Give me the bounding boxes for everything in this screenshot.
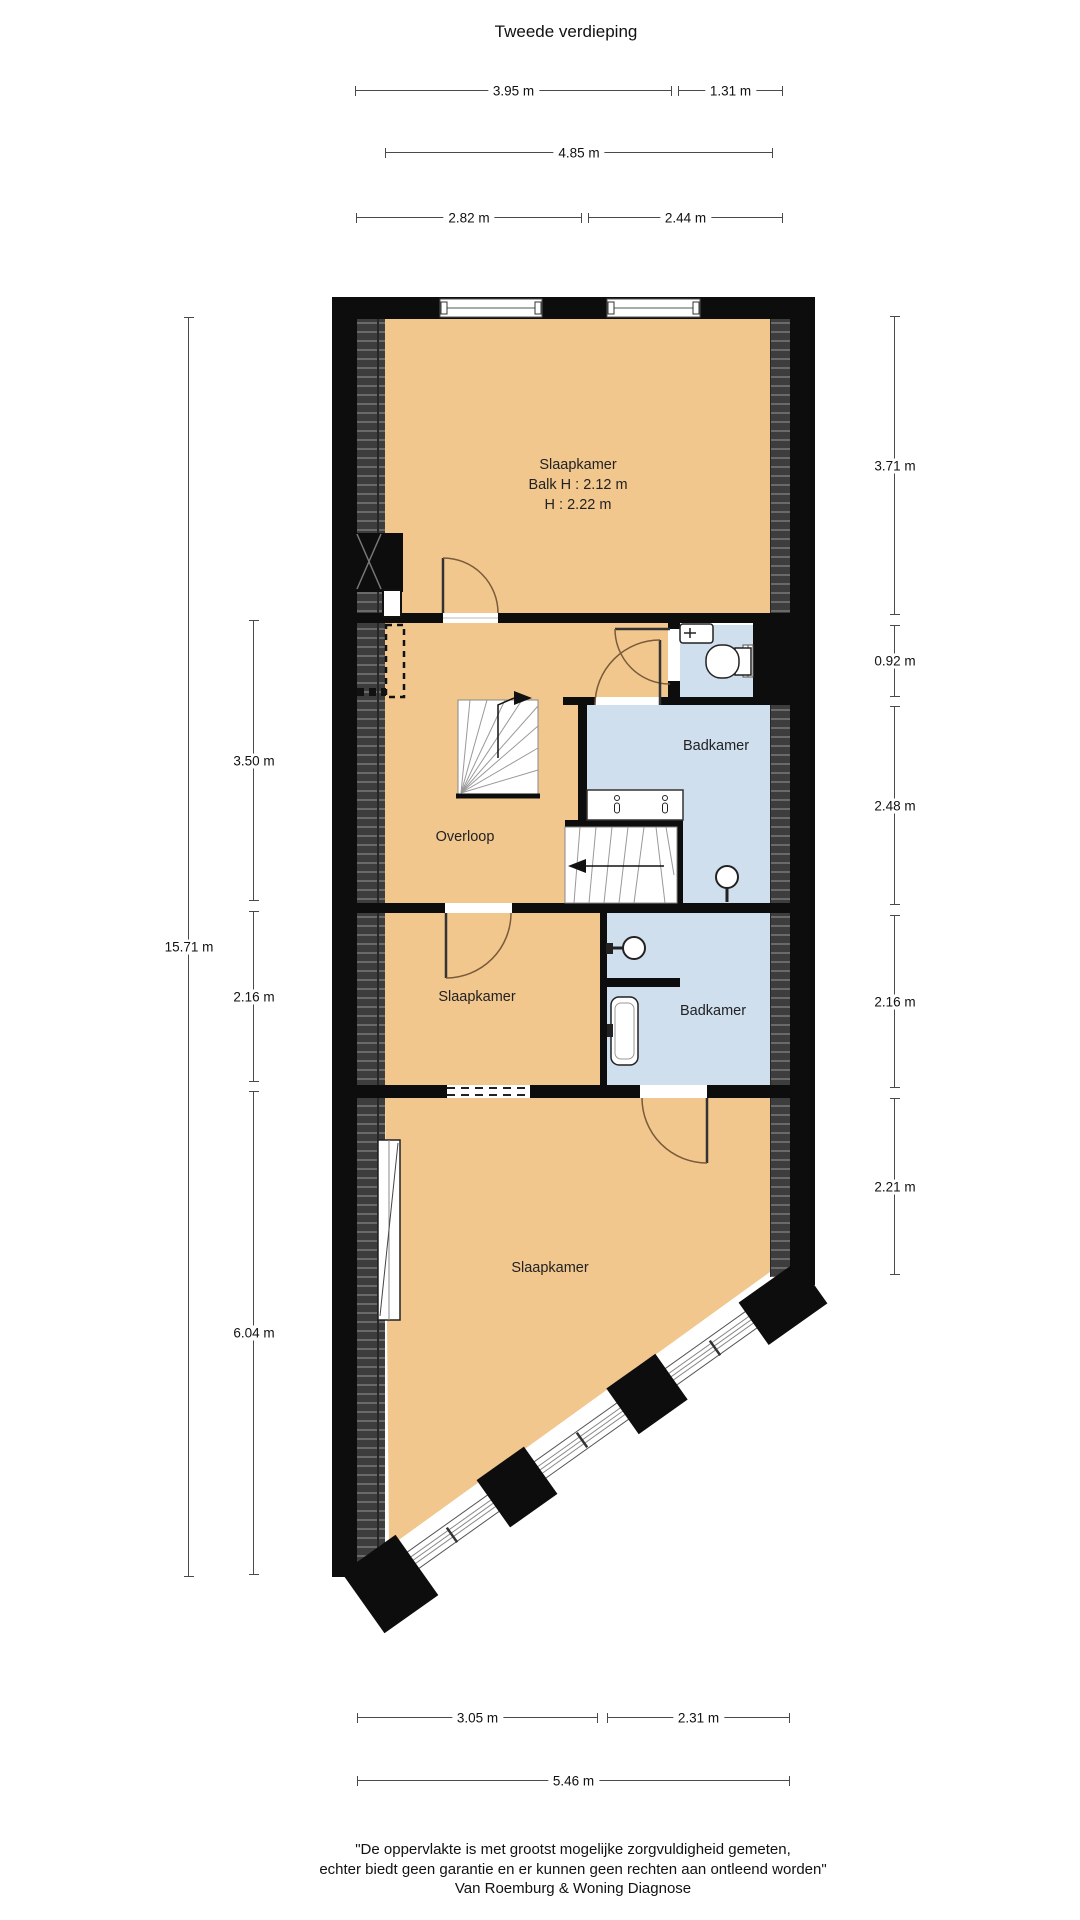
window-tall-left xyxy=(378,1140,400,1320)
window-top-left-jamb-b xyxy=(535,302,541,314)
dim-left-row: 2.16 m xyxy=(253,911,254,1082)
dim-top-131: 1.31 m xyxy=(678,90,783,91)
dim-top-485-label: 4.85 m xyxy=(553,146,604,161)
dim-top-131-label: 1.31 m xyxy=(705,84,756,99)
dim-top-244-label: 2.44 m xyxy=(660,211,711,226)
window-top-right-jamb-a xyxy=(608,302,614,314)
dim-left-hall-label: 3.50 m xyxy=(228,753,279,768)
wall-right xyxy=(790,297,815,1285)
dim-bottom-546-label: 5.46 m xyxy=(548,1774,599,1789)
page-title: Tweede verdieping xyxy=(495,22,638,42)
shower-main-head xyxy=(716,866,738,888)
opening-toilet xyxy=(668,629,680,681)
bedroom-top-name: Slaapkamer xyxy=(528,455,627,475)
bedroom-top-label: Slaapkamer Balk H : 2.12 m H : 2.22 m xyxy=(528,455,627,515)
wall-toilet-right xyxy=(753,623,790,705)
disclaimer: "De oppervlakte is met grootst mogelijke… xyxy=(319,1840,826,1899)
bedroom-large-floor xyxy=(385,1098,770,1547)
wall-bathroom-main-left xyxy=(578,705,587,827)
dim-right-bath: 2.48 m xyxy=(894,706,895,905)
washbasin-tap xyxy=(607,1024,613,1037)
dim-left-hall: 3.50 m xyxy=(253,620,254,901)
dim-top-282-label: 2.82 m xyxy=(443,211,494,226)
dim-right-toilet-label: 0.92 m xyxy=(869,654,920,669)
dim-left-total: 15.71 m xyxy=(188,317,189,1577)
wall-bathroom-second-left xyxy=(600,913,607,1085)
dim-right-bath-label: 2.48 m xyxy=(869,798,920,813)
opening-bedroom-small xyxy=(445,903,512,913)
wall-niche xyxy=(383,590,401,617)
shower-second-head xyxy=(623,937,645,959)
dim-right-lower-label: 2.21 m xyxy=(869,1179,920,1194)
dim-top-282: 2.82 m xyxy=(356,217,582,218)
dim-right-lower: 2.21 m xyxy=(894,1098,895,1275)
dim-left-total-label: 15.71 m xyxy=(160,940,219,955)
bathroom-second-label: Badkamer xyxy=(680,1001,746,1021)
staircase-main xyxy=(565,827,677,903)
toilet-bowl xyxy=(706,645,739,678)
disclaimer-line2: echter biedt geen garantie en er kunnen … xyxy=(319,1860,826,1880)
dim-top-395: 3.95 m xyxy=(355,90,672,91)
hatch-left xyxy=(357,319,385,1565)
dim-right-bedroom-label: 3.71 m xyxy=(869,458,920,473)
disclaimer-line3: Van Roemburg & Woning Diagnose xyxy=(319,1879,826,1899)
dim-right-row-label: 2.16 m xyxy=(869,994,920,1009)
window-top-left-jamb-a xyxy=(441,302,447,314)
bedroom-small-label: Slaapkamer xyxy=(438,987,515,1007)
hatch-right-upper xyxy=(770,319,790,613)
shower-second-mount xyxy=(606,943,613,954)
dim-top-485: 4.85 m xyxy=(385,152,773,153)
dim-top-395-label: 3.95 m xyxy=(488,84,539,99)
wall-under-counter xyxy=(565,820,683,827)
sink-counter-icon xyxy=(587,790,683,820)
floorplan-canvas xyxy=(0,0,1080,1920)
wall-shower-stub xyxy=(607,978,680,987)
wall-divider-row2 xyxy=(332,903,790,913)
hatch-right-lower xyxy=(770,705,790,1277)
dim-bottom-305-label: 3.05 m xyxy=(452,1711,503,1726)
staircase-winder xyxy=(456,691,540,796)
bathroom-main-label: Badkamer xyxy=(683,736,749,756)
opening-bathroom-main xyxy=(595,697,660,705)
opening-passage-dashed xyxy=(447,1085,530,1098)
toilet-fixture xyxy=(706,645,751,678)
bedroom-top-beam: Balk H : 2.12 m xyxy=(528,475,627,495)
bedroom-top-height: H : 2.22 m xyxy=(528,495,627,515)
dim-bottom-231: 2.31 m xyxy=(607,1717,790,1718)
dim-right-row: 2.16 m xyxy=(894,915,895,1088)
bedroom-large-label: Slaapkamer xyxy=(511,1258,588,1278)
wall-divider-row3 xyxy=(332,1085,790,1098)
dim-right-toilet: 0.92 m xyxy=(894,625,895,697)
dim-right-bedroom: 3.71 m xyxy=(894,316,895,615)
dim-bottom-231-label: 2.31 m xyxy=(673,1711,724,1726)
window-top-right-jamb-b xyxy=(693,302,699,314)
toilet-hand-basin xyxy=(680,624,713,643)
wall-top xyxy=(332,297,815,319)
wall-stair-right xyxy=(677,827,683,905)
sink-counter xyxy=(587,790,683,820)
dim-left-bottom-label: 6.04 m xyxy=(228,1326,279,1341)
dim-bottom-546: 5.46 m xyxy=(357,1780,790,1781)
hall-label: Overloop xyxy=(436,827,495,847)
opening-bedroom-large xyxy=(640,1085,707,1098)
dim-top-244: 2.44 m xyxy=(588,217,783,218)
dim-left-bottom: 6.04 m xyxy=(253,1091,254,1575)
dim-left-row-label: 2.16 m xyxy=(228,989,279,1004)
dim-bottom-305: 3.05 m xyxy=(357,1717,598,1718)
wall-left xyxy=(332,297,357,1577)
disclaimer-line1: "De oppervlakte is met grootst mogelijke… xyxy=(319,1840,826,1860)
washbasin-icon xyxy=(607,997,638,1065)
